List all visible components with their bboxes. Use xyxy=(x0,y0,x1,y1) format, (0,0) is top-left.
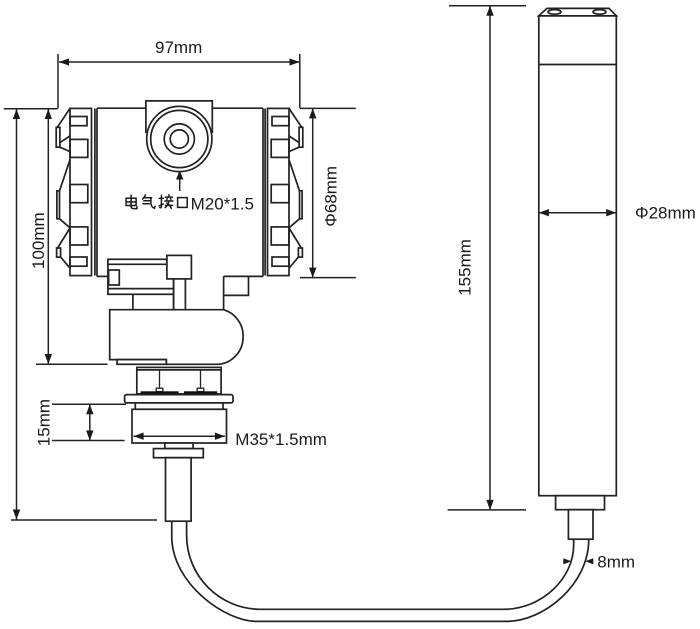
svg-text:155mm: 155mm xyxy=(456,239,475,296)
svg-text:100mm: 100mm xyxy=(29,212,48,269)
svg-text:Φ68mm: Φ68mm xyxy=(322,166,341,227)
svg-text:97mm: 97mm xyxy=(155,38,202,57)
svg-text:8mm: 8mm xyxy=(597,553,635,572)
svg-text:M20*1.5: M20*1.5 xyxy=(191,194,254,213)
svg-text:M35*1.5mm: M35*1.5mm xyxy=(235,430,327,449)
svg-text:15mm: 15mm xyxy=(34,399,53,446)
svg-text:Φ28mm: Φ28mm xyxy=(635,204,696,223)
